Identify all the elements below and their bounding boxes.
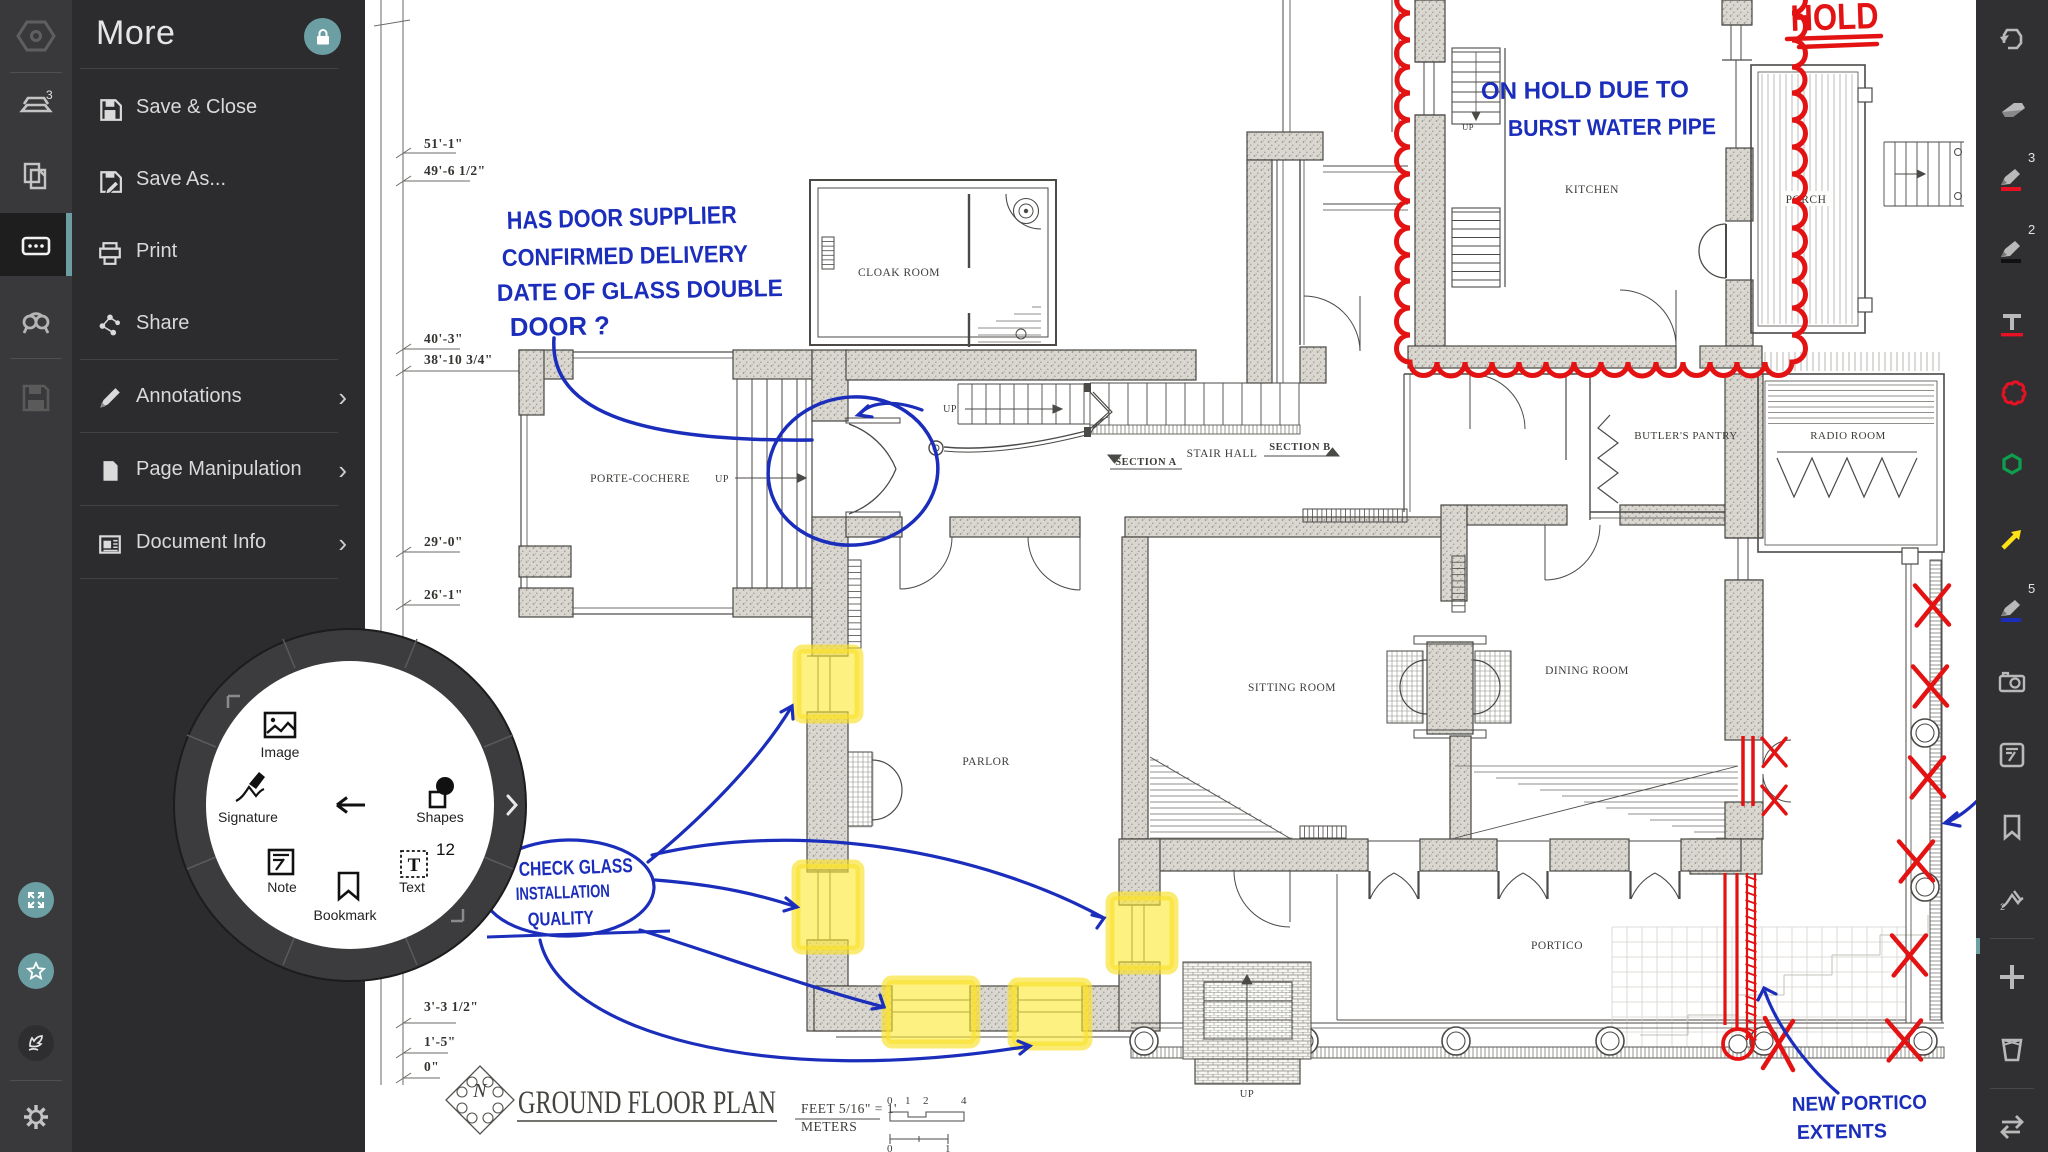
svg-text:UP: UP <box>1462 122 1474 132</box>
svg-text:3'-3 1/2": 3'-3 1/2" <box>424 999 478 1014</box>
svg-text:Bookmark: Bookmark <box>313 907 377 923</box>
svg-text:1'-5": 1'-5" <box>424 1034 456 1049</box>
svg-text:40'-3": 40'-3" <box>424 331 463 346</box>
svg-text:METERS: METERS <box>801 1119 857 1134</box>
svg-text:SECTION B: SECTION B <box>1269 442 1330 453</box>
svg-text:QUALITY: QUALITY <box>527 908 594 931</box>
svg-text:T: T <box>408 855 421 876</box>
svg-text:UP: UP <box>715 474 729 485</box>
svg-text:Image: Image <box>261 744 300 760</box>
svg-text:38'-10 3/4": 38'-10 3/4" <box>424 352 493 367</box>
svg-text:4: 4 <box>961 1095 967 1107</box>
svg-text:3: 3 <box>46 88 53 102</box>
svg-text:DATE OF GLASS DOUBLE: DATE OF GLASS DOUBLE <box>497 275 783 307</box>
svg-text:PARLOR: PARLOR <box>962 756 1009 768</box>
svg-text:KITCHEN: KITCHEN <box>1565 184 1619 196</box>
svg-text:2: 2 <box>923 1095 929 1107</box>
svg-text:1: 1 <box>905 1095 911 1107</box>
svg-text:Text: Text <box>399 879 425 895</box>
svg-text:Shapes: Shapes <box>416 809 463 825</box>
svg-text:ON HOLD DUE TO: ON HOLD DUE TO <box>1481 76 1689 105</box>
svg-text:NEW PORTICO: NEW PORTICO <box>1792 1092 1927 1116</box>
svg-text:12: 12 <box>436 840 455 859</box>
svg-text:PORTE-COCHERE: PORTE-COCHERE <box>590 473 690 485</box>
svg-text:UP: UP <box>943 404 957 415</box>
svg-text:FEET 5/16" = 1': FEET 5/16" = 1' <box>801 1101 897 1116</box>
svg-text:1: 1 <box>945 1143 951 1152</box>
svg-text:Note: Note <box>267 879 297 895</box>
svg-text:EXTENTS: EXTENTS <box>1797 1120 1887 1144</box>
svg-text:Signature: Signature <box>218 809 278 825</box>
svg-text:26'-1": 26'-1" <box>424 587 463 602</box>
svg-text:N: N <box>472 1080 488 1102</box>
svg-text:0: 0 <box>887 1143 893 1152</box>
svg-text:BUTLER'S PANTRY: BUTLER'S PANTRY <box>1634 430 1738 442</box>
svg-text:RADIO ROOM: RADIO ROOM <box>1810 430 1886 442</box>
svg-text:2: 2 <box>2000 902 2005 912</box>
svg-text:0": 0" <box>424 1059 439 1074</box>
svg-text:29'-0": 29'-0" <box>424 534 463 549</box>
svg-text:DOOR ?: DOOR ? <box>510 310 611 342</box>
svg-text:SITTING ROOM: SITTING ROOM <box>1248 682 1336 694</box>
svg-text:CLOAK ROOM: CLOAK ROOM <box>858 267 940 279</box>
svg-text:GROUND FLOOR PLAN: GROUND FLOOR PLAN <box>518 1085 776 1121</box>
svg-text:STAIR HALL: STAIR HALL <box>1187 448 1258 460</box>
svg-text:PORCH: PORCH <box>1786 194 1827 206</box>
svg-text:UP: UP <box>1240 1089 1254 1100</box>
svg-text:CHECK GLASS: CHECK GLASS <box>518 855 633 881</box>
svg-text:0: 0 <box>887 1095 893 1107</box>
svg-text:49'-6 1/2": 49'-6 1/2" <box>424 163 486 178</box>
svg-text:SECTION A: SECTION A <box>1115 457 1176 468</box>
svg-text:DINING ROOM: DINING ROOM <box>1545 665 1629 677</box>
svg-text:51'-1": 51'-1" <box>424 136 463 151</box>
svg-text:PORTICO: PORTICO <box>1531 940 1583 952</box>
svg-text:CONFIRMED DELIVERY: CONFIRMED DELIVERY <box>502 241 748 272</box>
svg-text:BURST WATER PIPE: BURST WATER PIPE <box>1508 113 1716 141</box>
